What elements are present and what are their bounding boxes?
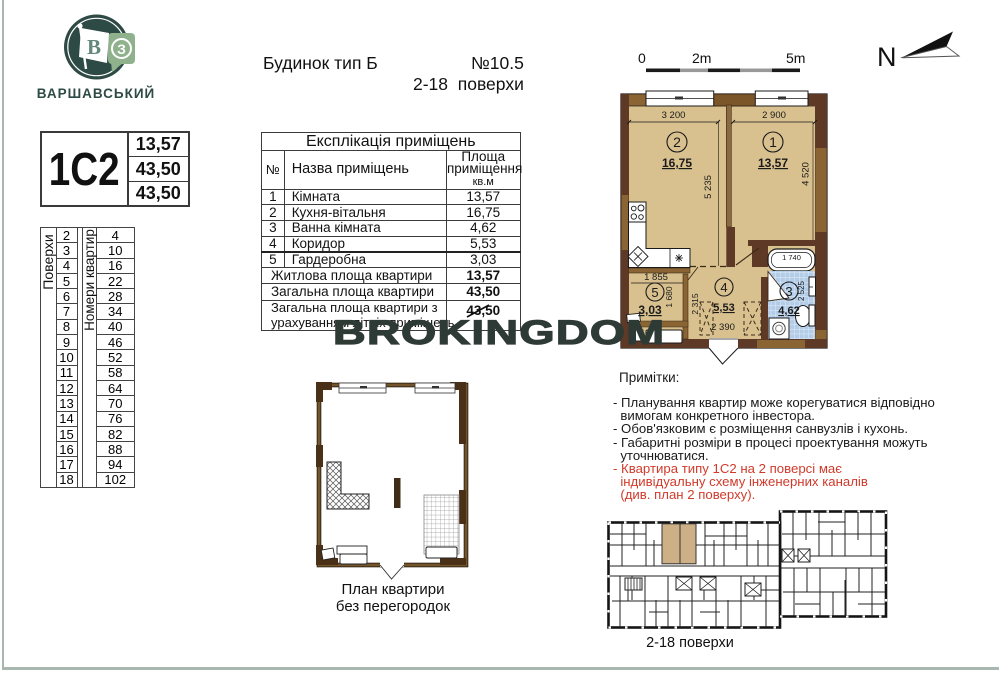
svg-text:2: 2	[673, 134, 681, 150]
svg-text:3 200: 3 200	[662, 110, 686, 121]
svg-text:2m: 2m	[692, 50, 711, 66]
svg-text:1 680: 1 680	[664, 286, 674, 308]
svg-text:4,62: 4,62	[778, 305, 799, 317]
svg-text:5,53: 5,53	[713, 302, 734, 314]
svg-text:N: N	[877, 42, 897, 72]
svg-text:13,57: 13,57	[758, 156, 788, 170]
svg-text:1 740: 1 740	[782, 253, 801, 262]
svg-text:В: В	[87, 35, 101, 59]
svg-text:2 315: 2 315	[690, 293, 700, 315]
svg-text:1 855: 1 855	[644, 272, 668, 283]
svg-text:16,75: 16,75	[662, 156, 692, 170]
svg-text:3: 3	[785, 284, 792, 299]
svg-text:4 520: 4 520	[801, 162, 812, 186]
svg-text:5 235: 5 235	[703, 175, 714, 199]
svg-text:2 390: 2 390	[711, 322, 735, 333]
svg-text:5: 5	[651, 285, 658, 300]
svg-text:5m: 5m	[786, 50, 805, 66]
svg-text:1: 1	[769, 134, 777, 150]
svg-text:З: З	[117, 41, 126, 57]
svg-text:4: 4	[720, 280, 727, 295]
svg-text:2 900: 2 900	[762, 110, 786, 121]
svg-text:0: 0	[638, 50, 646, 66]
